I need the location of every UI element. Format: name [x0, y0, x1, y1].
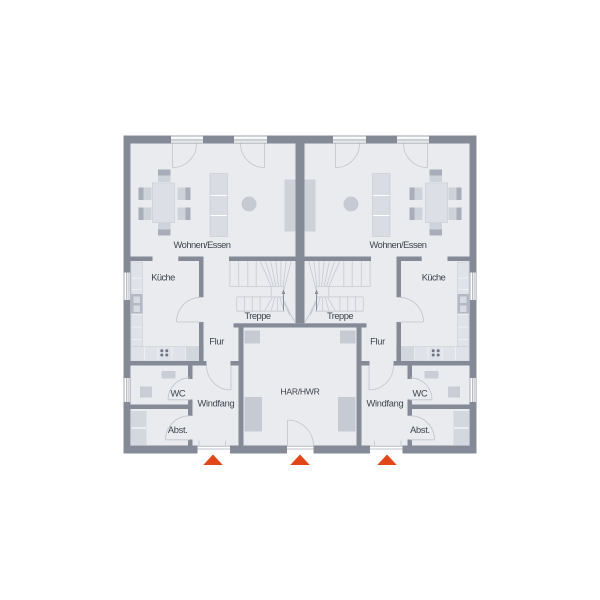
- svg-text:Abst.: Abst.: [168, 425, 188, 435]
- svg-text:Treppe: Treppe: [244, 311, 270, 321]
- svg-text:Treppe: Treppe: [327, 311, 353, 321]
- svg-text:WC: WC: [413, 388, 428, 398]
- svg-text:Küche: Küche: [422, 273, 446, 283]
- svg-text:Wohnen/Essen: Wohnen/Essen: [370, 240, 427, 250]
- svg-text:Flur: Flur: [370, 337, 385, 347]
- svg-text:Flur: Flur: [209, 337, 224, 347]
- svg-text:Küche: Küche: [151, 273, 175, 283]
- svg-text:WC: WC: [170, 388, 185, 398]
- svg-text:Wohnen/Essen: Wohnen/Essen: [174, 240, 231, 250]
- svg-text:HAR/HWR: HAR/HWR: [281, 387, 320, 397]
- svg-text:Windfang: Windfang: [367, 399, 404, 409]
- svg-text:Abst.: Abst.: [410, 425, 430, 435]
- svg-text:Windfang: Windfang: [198, 399, 235, 409]
